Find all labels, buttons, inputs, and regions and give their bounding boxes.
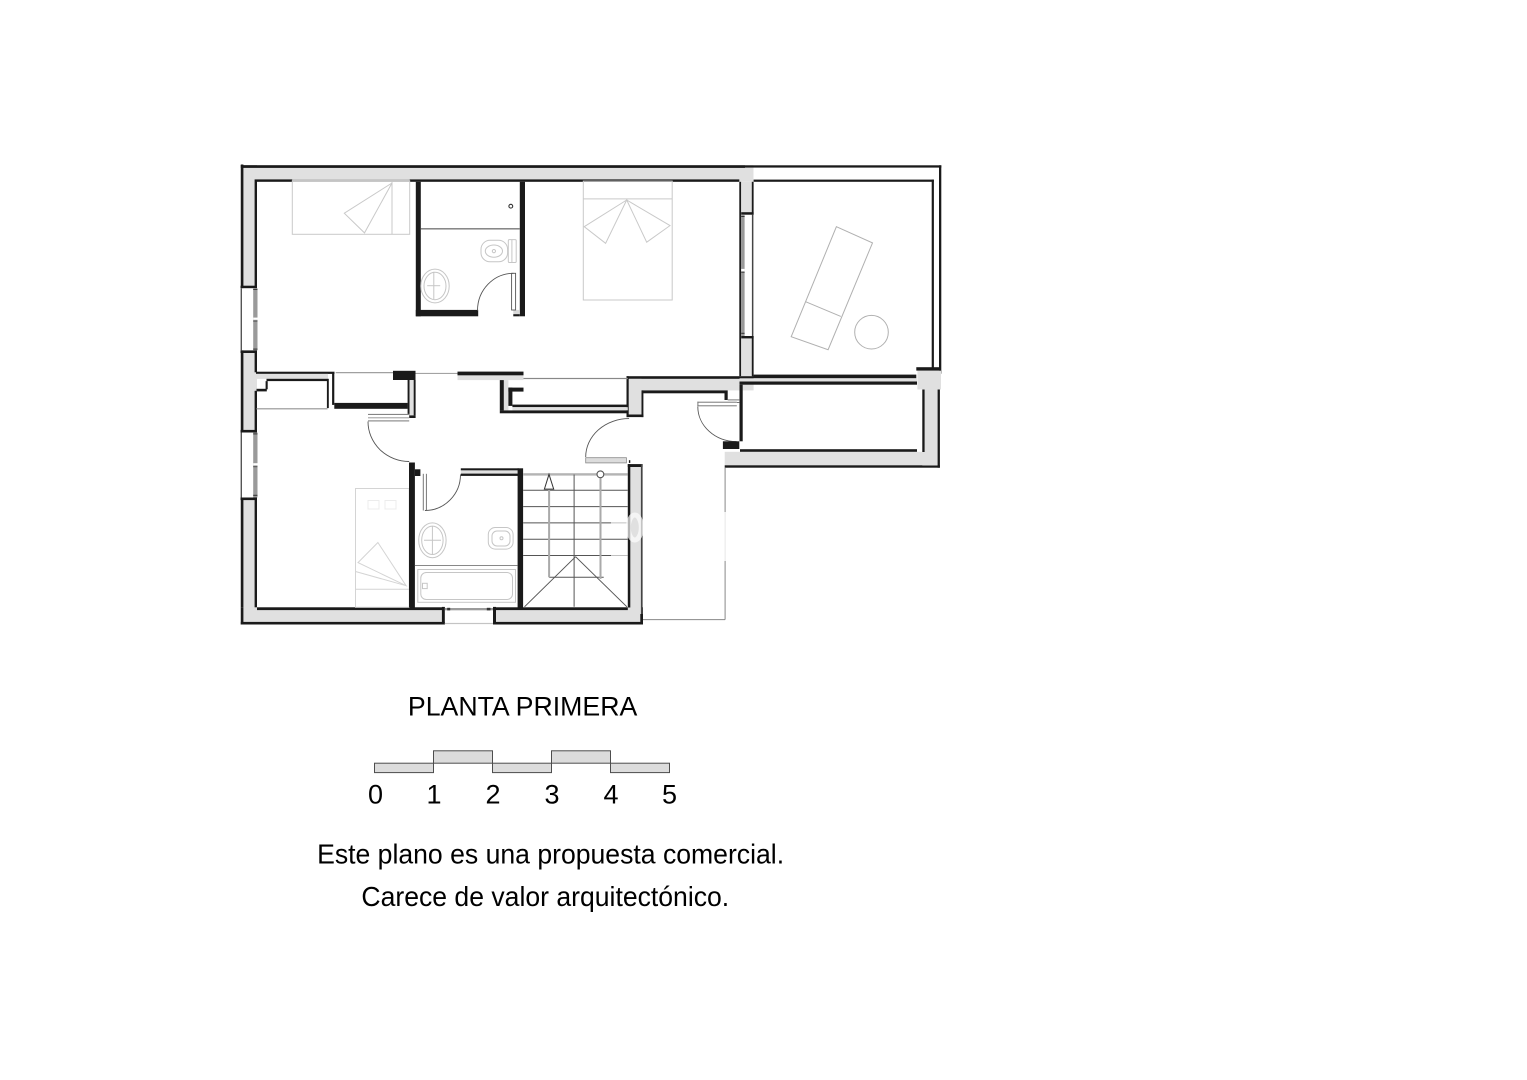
svg-text:3: 3 — [544, 780, 559, 810]
svg-text:2: 2 — [485, 780, 500, 810]
svg-text:0: 0 — [368, 780, 383, 810]
svg-text:PLANTA PRIMERA: PLANTA PRIMERA — [408, 692, 637, 722]
svg-text:Este plano es una propuesta co: Este plano es una propuesta comercial. — [317, 839, 784, 870]
svg-text:1: 1 — [426, 780, 441, 810]
svg-text:4: 4 — [603, 780, 618, 810]
svg-text:Carece de valor arquitectónico: Carece de valor arquitectónico. — [361, 881, 729, 912]
svg-text:5: 5 — [662, 780, 677, 810]
